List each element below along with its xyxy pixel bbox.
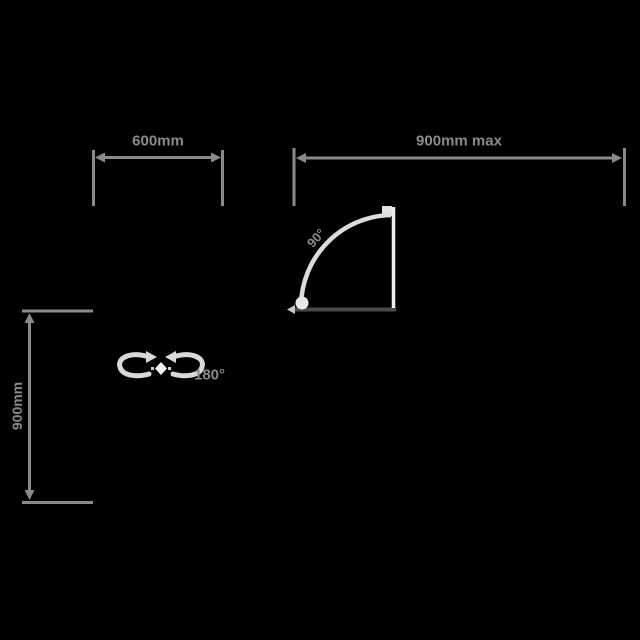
axis-dash-left [151, 367, 154, 370]
rotation-arrowhead-left-icon [146, 351, 157, 363]
axis-dash-right [168, 367, 171, 370]
arrowhead-left-icon [95, 153, 105, 163]
pivot-diamond-icon [155, 362, 167, 375]
rotation-arrowhead-right-icon [165, 351, 176, 363]
arrowhead-right-icon [612, 153, 622, 163]
arrowhead-up-icon [25, 313, 35, 323]
arrowhead-down-icon [25, 490, 35, 500]
diagram-shapes [0, 0, 640, 640]
hinge-circle-icon [296, 297, 309, 310]
dimension-label-top-right: 900mm max [416, 133, 502, 150]
dimension-label-left-vertical: 900mm [9, 382, 25, 430]
door-swing-symbol [287, 206, 396, 314]
dimension-left-vertical [22, 311, 93, 503]
rotation-180-icon [120, 351, 203, 376]
rotation-angle-label: 180° [194, 367, 225, 384]
dimension-label-top-left: 600mm [132, 133, 184, 150]
diagram-canvas: 600mm 900mm max 900mm 90° 180° [0, 0, 640, 640]
arrowhead-left-icon [296, 153, 306, 163]
arrowhead-right-icon [211, 153, 221, 163]
wall-arrowhead-icon [287, 305, 295, 314]
dimension-top-left [94, 150, 223, 206]
dimension-top-right [294, 148, 625, 206]
rotation-arrow-left [120, 355, 149, 376]
